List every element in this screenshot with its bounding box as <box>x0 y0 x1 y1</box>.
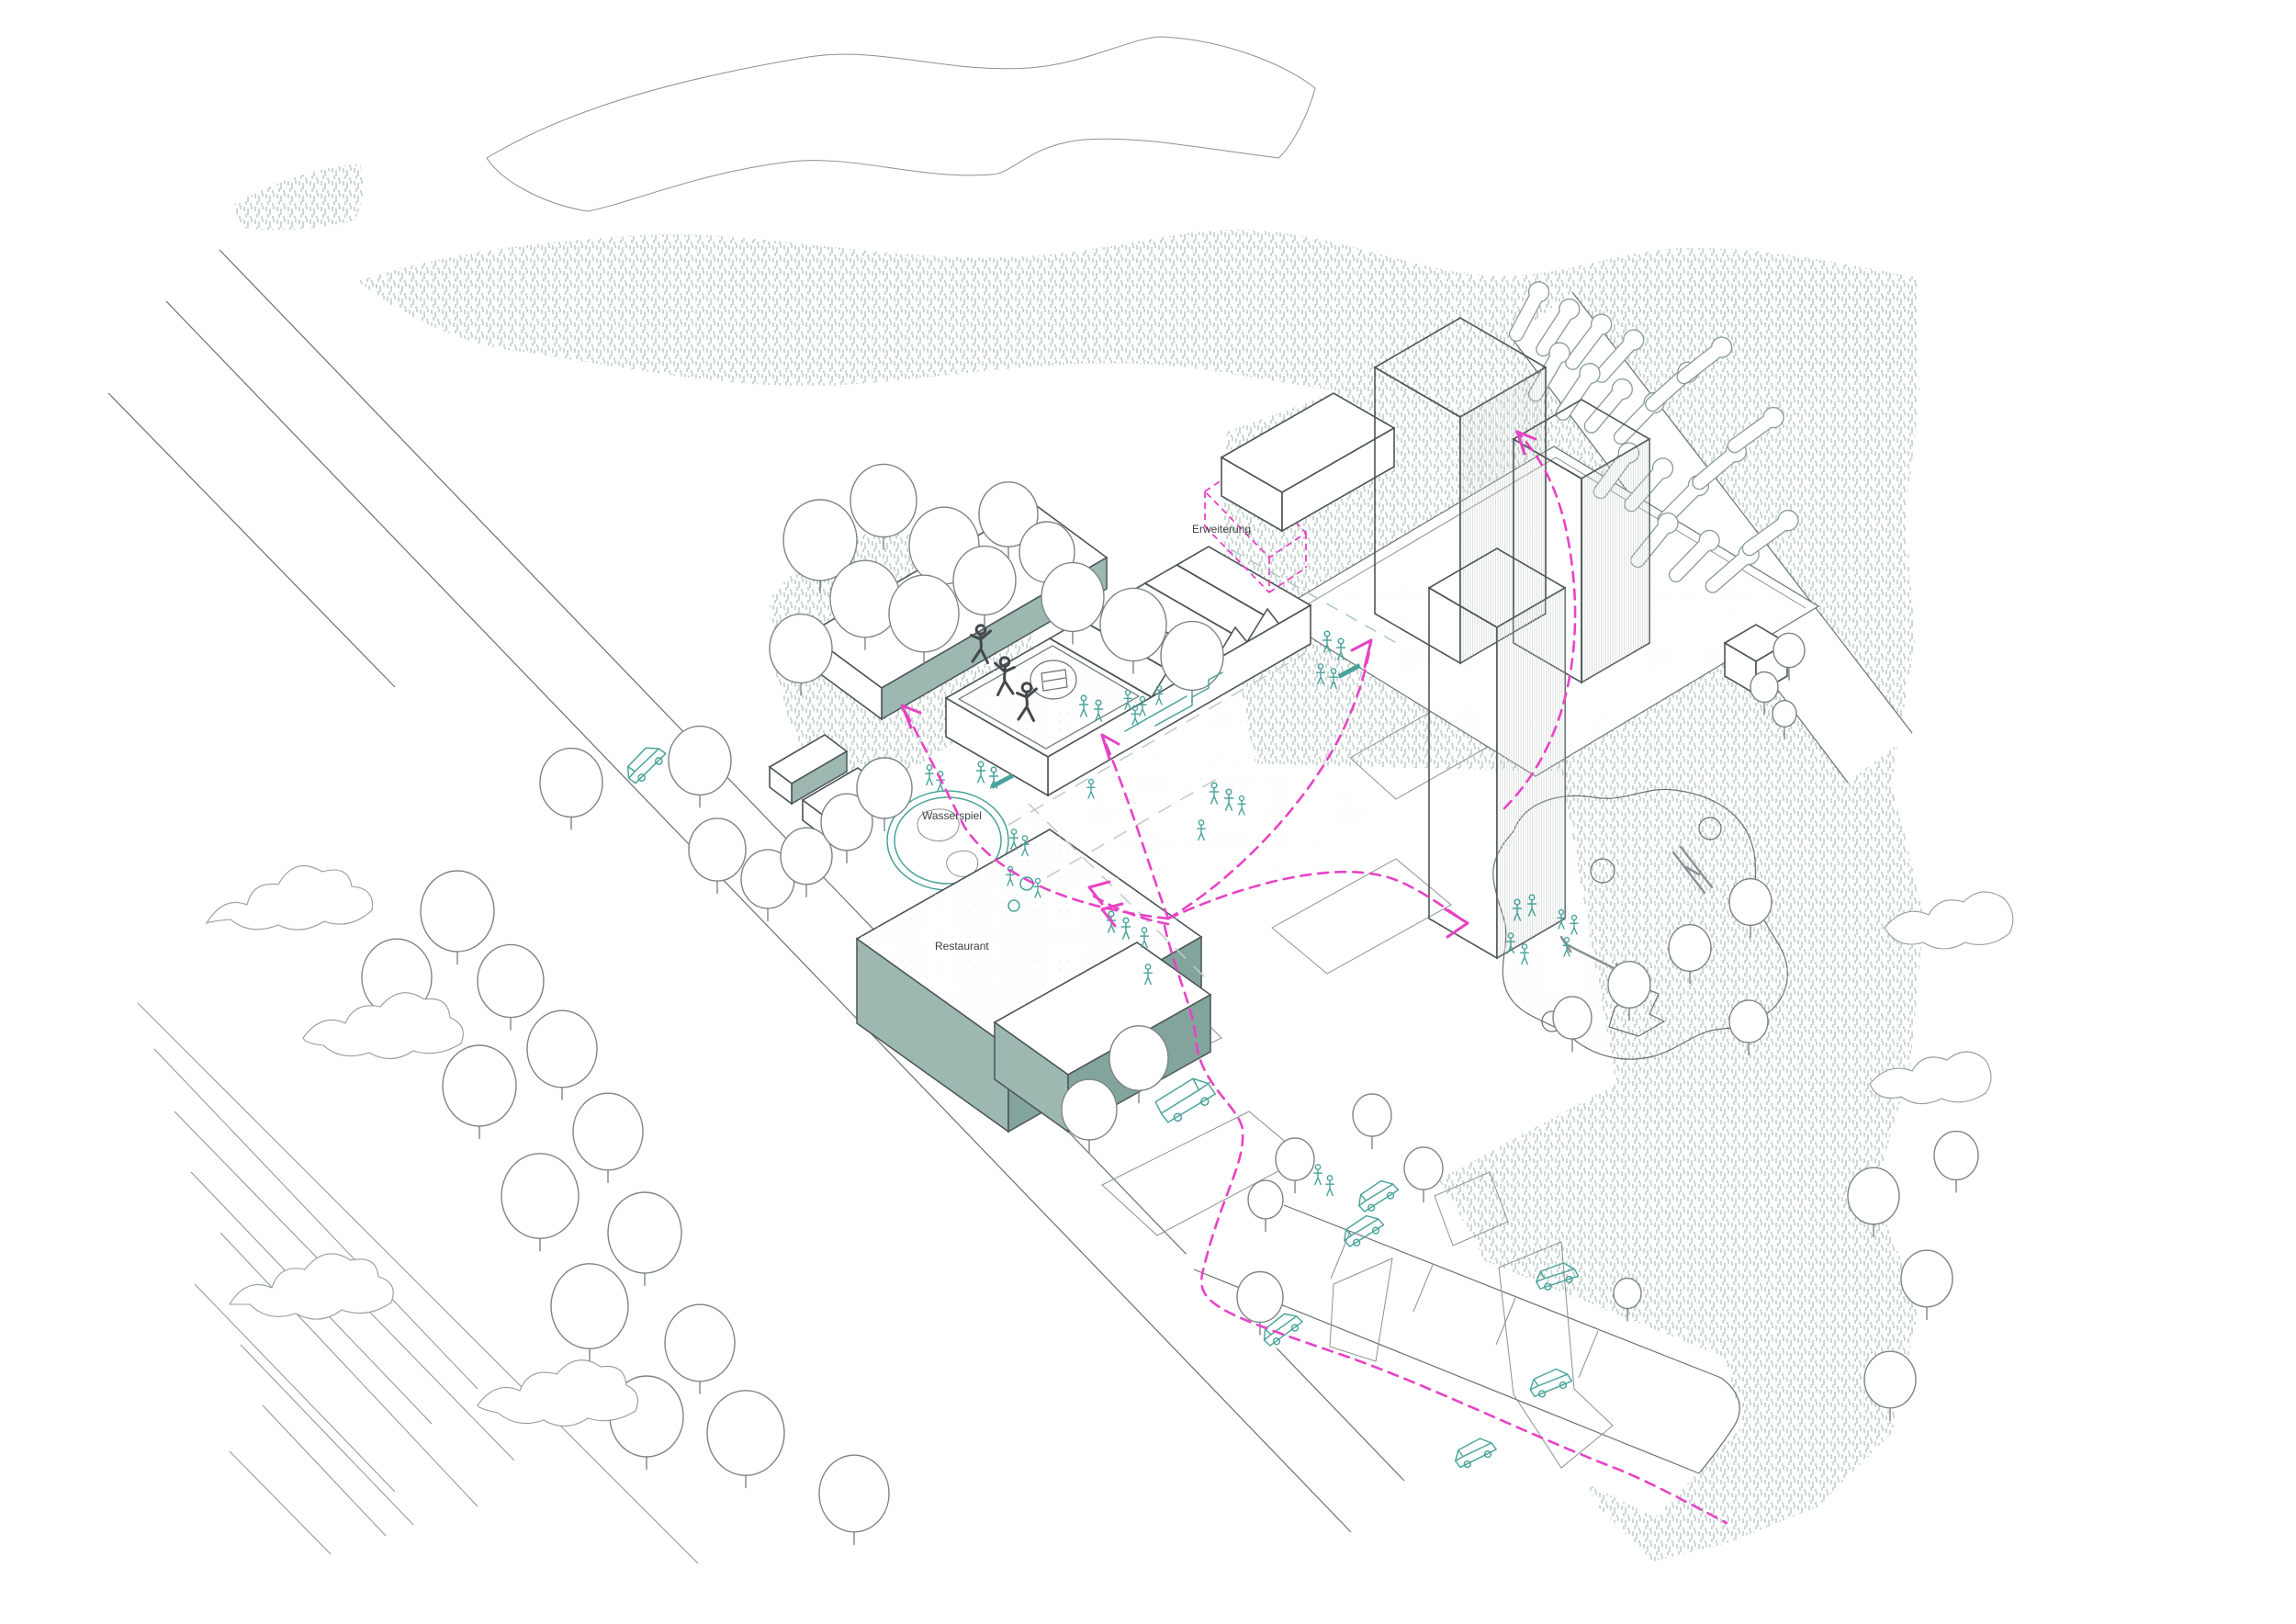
tree-icon <box>669 727 731 808</box>
tree-icon <box>443 1045 516 1139</box>
tree-icon <box>527 1010 597 1100</box>
tree-icon <box>1062 1079 1117 1153</box>
site-plan-axonometric: Wasserspiel <box>0 0 2296 1624</box>
person-icon <box>1326 1176 1334 1196</box>
tree-icon <box>421 871 494 964</box>
tree-icon <box>819 1455 889 1545</box>
tree-icon <box>501 1154 579 1251</box>
person-icon <box>926 765 934 785</box>
restaurant-label: Restaurant <box>935 940 989 953</box>
forest-cloud-left-sliver <box>234 164 364 230</box>
forest-cloud-top <box>487 37 1315 211</box>
tree-icon <box>478 944 544 1030</box>
car-icon <box>1451 1434 1498 1471</box>
tree-icon <box>551 1264 628 1361</box>
tree-icon <box>665 1304 735 1394</box>
tree-icon <box>1934 1132 1978 1193</box>
person-icon <box>1314 1165 1322 1185</box>
tree-icon <box>1276 1138 1314 1193</box>
tree-icon <box>689 818 746 894</box>
tree-icon <box>540 749 602 830</box>
extension-label: Erweiterung <box>1192 523 1251 536</box>
car-icon <box>621 740 669 786</box>
tree-icon <box>573 1093 643 1183</box>
water-feature-label: Wasserspiel <box>922 809 982 822</box>
tree-icon <box>608 1192 681 1286</box>
tree-icon <box>707 1391 784 1488</box>
van-icon <box>1154 1073 1219 1126</box>
